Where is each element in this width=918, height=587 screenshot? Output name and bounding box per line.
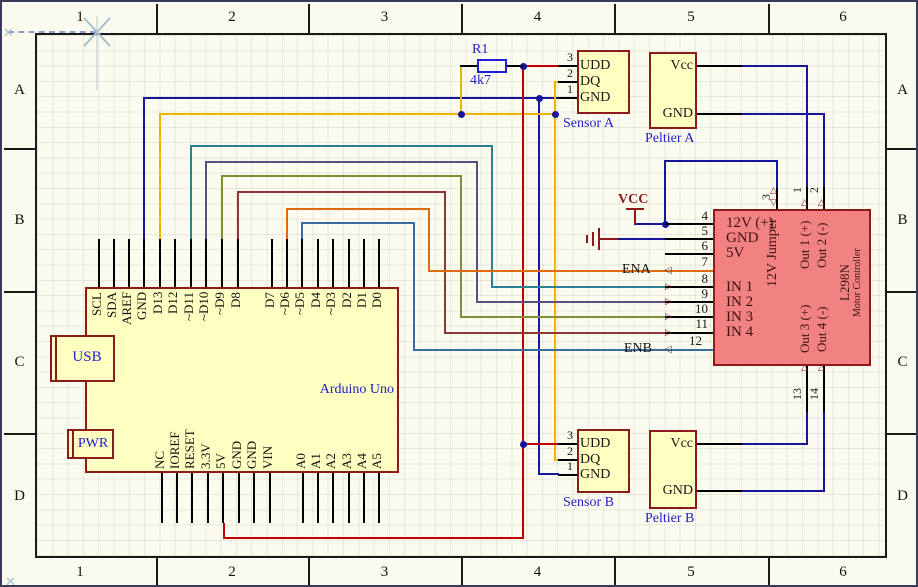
wire-peltier-a-gnd[interactable] <box>742 113 825 115</box>
pin-d2 <box>348 239 350 287</box>
pwr-label: PWR <box>74 436 112 452</box>
wire-d6-ena[interactable] <box>428 208 430 272</box>
port-arrow-icon: △ <box>801 198 808 207</box>
ruler-row-label: D <box>887 488 918 505</box>
sensor-b-pin1-line <box>558 474 577 476</box>
l298n-out3-label: Out 3 (+) <box>798 296 815 362</box>
pin-vin <box>269 473 271 523</box>
gnd-symbol-icon <box>598 238 618 240</box>
ena-net-label: ENA <box>622 262 651 278</box>
port-arrow-icon: △ <box>801 363 808 372</box>
ruler-divider <box>887 148 918 150</box>
pin-gnd1 <box>238 473 240 523</box>
schematic-canvas[interactable]: 1 2 3 4 5 6 1 2 3 4 5 6 A B C D A B C D … <box>0 0 918 587</box>
ruler-divider <box>4 148 35 150</box>
sensor-a-pin-name: UDD <box>580 58 610 74</box>
peltier-b-label: Peltier B <box>645 511 694 527</box>
r1-lead <box>507 65 523 67</box>
pin-d0 <box>378 239 380 287</box>
cursor-crosshair-icon <box>82 14 114 92</box>
wire-peltier-b-vcc[interactable] <box>742 443 808 445</box>
wire-peltier-b-gnd[interactable] <box>823 412 825 492</box>
ruler-row-label: A <box>4 82 35 99</box>
l298n-pin-number: 8 <box>684 271 708 287</box>
port-arrow-up-icon: △ <box>770 186 777 195</box>
wire-d8-in4[interactable] <box>444 332 665 334</box>
junction-dot <box>552 111 559 118</box>
arduino-name-label: Arduino Uno <box>302 382 394 398</box>
peltier-a-vcc-line <box>697 65 742 67</box>
usb-label: USB <box>62 349 112 366</box>
port-arrow-down-icon: ▽ <box>770 198 777 207</box>
pin-label: D0 <box>370 292 387 358</box>
ruler-row-label: A <box>887 82 918 99</box>
l298n-subtitle-label: Motor Controller <box>853 230 866 335</box>
pin-d4 <box>317 239 319 287</box>
port-arrow-icon: △ <box>818 363 825 372</box>
cursor-mark-icon: ✕ <box>3 26 14 39</box>
ruler-col-label: 6 <box>768 9 918 26</box>
peltier-a-pin-name: Vcc <box>653 58 693 74</box>
input-arrow-icon: ▷ <box>665 282 672 291</box>
wire-d11-in1[interactable] <box>491 145 493 288</box>
ruler-row-label: B <box>4 212 35 229</box>
l298n-out4-label: Out 4 (-) <box>815 296 832 362</box>
component-r1[interactable] <box>477 59 507 73</box>
wire-d9-in3[interactable] <box>221 175 223 240</box>
pin-sda <box>113 239 115 287</box>
vcc-symbol-icon <box>634 209 636 224</box>
ruler-row-label: B <box>887 212 918 229</box>
input-arrow-icon: ▷ <box>665 312 672 321</box>
wire-net-pgnd[interactable] <box>617 238 666 240</box>
pin-d9 <box>221 239 223 287</box>
pin-nc <box>161 473 163 523</box>
l298n-pin-number: 13 <box>791 382 806 406</box>
wire-d5-enb[interactable] <box>413 222 415 351</box>
l298n-pin-number: 14 <box>808 382 823 406</box>
junction-dot <box>520 441 527 448</box>
l298n-pin-number: 9 <box>684 286 708 302</box>
pin-d11 <box>190 239 192 287</box>
ruler-row-label: C <box>887 354 918 371</box>
peltier-b-pin-name: Vcc <box>653 436 693 452</box>
wire-d11-in1[interactable] <box>190 145 192 240</box>
wire-net-gnd[interactable] <box>538 473 559 475</box>
wire-d6-ena[interactable] <box>286 208 430 210</box>
pin-scl <box>98 239 100 287</box>
ruler-col-label: 3 <box>308 9 461 26</box>
vcc-symbol-label: VCC <box>618 192 648 208</box>
ruler-divider <box>4 433 35 435</box>
ruler-col-label: 4 <box>461 9 614 26</box>
wire-d5-enb[interactable] <box>301 222 303 240</box>
sensor-a-pin1-line <box>558 97 577 99</box>
ruler-row-label: C <box>4 354 35 371</box>
pin-gnd2 <box>253 473 255 523</box>
wire-net-gnd[interactable] <box>143 98 145 240</box>
wire-d9-in3[interactable] <box>460 175 462 318</box>
wire-peltier-a-gnd[interactable] <box>823 113 825 187</box>
sensor-a-pin-number: 1 <box>558 82 573 97</box>
pin-5v <box>222 473 224 523</box>
r1-value-label: 4k7 <box>470 73 491 89</box>
wire-d9-in3[interactable] <box>460 316 665 318</box>
sensor-b-pin-name: UDD <box>580 436 610 452</box>
wire-peltier-a-vcc[interactable] <box>742 65 808 67</box>
wire-peltier-a-vcc[interactable] <box>806 65 808 187</box>
wire-d10-in2[interactable] <box>205 161 207 240</box>
pin-aref <box>128 239 130 287</box>
sensor-a-pin-number: 2 <box>558 66 573 81</box>
wire-d5-enb[interactable] <box>301 222 415 224</box>
input-arrow-icon: ▷ <box>665 328 672 337</box>
l298n-out1-label: Out 1 (+) <box>798 212 815 278</box>
pin-label: D8 <box>229 292 246 358</box>
peltier-b-pin-name: GND <box>653 483 693 499</box>
peltier-a-gnd-line <box>697 113 742 115</box>
pin-d12 <box>174 239 176 287</box>
sensor-a-pin-name: GND <box>580 90 610 106</box>
sensor-b-pin-number: 2 <box>558 444 573 459</box>
wire-peltier-b-gnd[interactable] <box>742 490 825 492</box>
input-arrow-icon: ▷ <box>665 297 672 306</box>
ena-port-arrow-icon: ◁ <box>664 266 672 276</box>
pin-d1 <box>363 239 365 287</box>
sensor-b-pin-number: 1 <box>558 459 573 474</box>
usb-connector-inner-line <box>55 337 57 380</box>
sensor-a-label: Sensor A <box>563 116 614 132</box>
ruler-divider <box>4 291 35 293</box>
pin-a0 <box>302 473 304 523</box>
ruler-col-label: 4 <box>461 564 614 581</box>
ruler-col-label: 2 <box>156 9 308 26</box>
r1-lead <box>460 65 477 67</box>
pin-d6 <box>286 239 288 287</box>
cursor-mark-icon: ✕ <box>5 575 16 587</box>
pin-reset <box>191 473 193 523</box>
wire-net-dq[interactable] <box>159 113 161 240</box>
peltier-a-pin-name: GND <box>653 106 693 122</box>
enb-port-arrow-icon: ◁ <box>664 345 672 355</box>
l298n-pin14-line <box>823 366 825 412</box>
l298n-pin-number: 10 <box>684 301 708 317</box>
pin-label: VIN <box>261 405 278 469</box>
wire-d8-in4[interactable] <box>237 191 446 193</box>
wire-d10-in2[interactable] <box>476 161 478 303</box>
wire-net-dq[interactable] <box>460 66 462 115</box>
pin-d5 <box>301 239 303 287</box>
pin-d10 <box>205 239 207 287</box>
ruler-col-label: 2 <box>156 564 308 581</box>
l298n-pin-number: 11 <box>684 316 708 332</box>
wire-peltier-b-vcc[interactable] <box>806 412 808 445</box>
l298n-pin-number: 12 <box>678 333 702 349</box>
wire-net-gnd[interactable] <box>143 97 559 99</box>
l298n-pin-number: 7 <box>684 254 708 270</box>
ruler-divider <box>887 433 918 435</box>
wire-d10-in2[interactable] <box>476 301 665 303</box>
gnd-symbol-icon <box>592 232 594 246</box>
ruler-row-label: D <box>4 488 35 505</box>
peltier-b-vcc-line <box>697 443 742 445</box>
pin-a1 <box>317 473 319 523</box>
peltier-a-label: Peltier A <box>645 131 694 147</box>
l298n-out2-label: Out 2 (-) <box>815 212 832 278</box>
pin-a5 <box>378 473 380 523</box>
ruler-col-label: 3 <box>308 564 461 581</box>
pin-label: A5 <box>370 405 387 469</box>
sensor-a-pin-name: DQ <box>580 74 600 90</box>
sensor-b-label: Sensor B <box>563 495 614 511</box>
peltier-b-gnd-line <box>697 490 742 492</box>
gnd-symbol-icon <box>586 235 588 243</box>
ruler-col-label: 1 <box>4 9 156 26</box>
sensor-b-pin-number: 3 <box>558 428 573 443</box>
l298n-pin-number: 6 <box>684 238 708 254</box>
ruler-col-label: 1 <box>4 564 156 581</box>
l298n-pin-name: 5V <box>726 245 744 262</box>
wire-d9-in3[interactable] <box>221 175 462 177</box>
l298n-pin-number: 4 <box>684 208 708 224</box>
wire-d6-ena[interactable] <box>286 208 288 240</box>
pin-a3 <box>348 473 350 523</box>
pin-ioref <box>176 473 178 523</box>
wire-net-5v[interactable] <box>522 443 559 445</box>
wire-net-12v[interactable] <box>664 161 666 224</box>
pin-3v3 <box>207 473 209 523</box>
sensor-b-pin-name: GND <box>580 467 610 483</box>
ruler-col-label: 6 <box>768 564 918 581</box>
pin-d7 <box>271 239 273 287</box>
sensor-a-pin-number: 3 <box>558 50 573 65</box>
wire-d11-in1[interactable] <box>491 286 665 288</box>
wire-d11-in1[interactable] <box>190 145 493 147</box>
sensor-b-pin-name: DQ <box>580 452 600 468</box>
ruler-col-label: 5 <box>614 564 768 581</box>
port-arrow-icon: △ <box>818 198 825 207</box>
ruler-divider <box>887 291 918 293</box>
pin-gnd-top <box>143 239 145 287</box>
l298n-pin-number: 5 <box>684 223 708 239</box>
l298n-12v-jumper-label: 12V Jumper <box>766 214 786 292</box>
wire-net-5v[interactable] <box>223 523 225 539</box>
ruler-col-label: 5 <box>614 9 768 26</box>
pin-a2 <box>332 473 334 523</box>
wire-net-dq[interactable] <box>159 113 556 115</box>
junction-dot <box>536 95 543 102</box>
wire-d8-in4[interactable] <box>444 191 446 334</box>
pin-d8 <box>237 239 239 287</box>
wire-d10-in2[interactable] <box>205 161 478 163</box>
r1-ref-label: R1 <box>472 42 488 58</box>
pin-d13 <box>159 239 161 287</box>
l298n-pin-name: IN 4 <box>726 324 753 341</box>
wire-d8-in4[interactable] <box>237 191 239 240</box>
wire-net-5v[interactable] <box>223 537 524 539</box>
wire-net-12v[interactable] <box>664 160 778 162</box>
junction-dot <box>458 111 465 118</box>
pin-a4 <box>363 473 365 523</box>
wire-net-5v[interactable] <box>522 65 559 67</box>
enb-net-label: ENB <box>624 341 652 357</box>
pin-d3 <box>332 239 334 287</box>
